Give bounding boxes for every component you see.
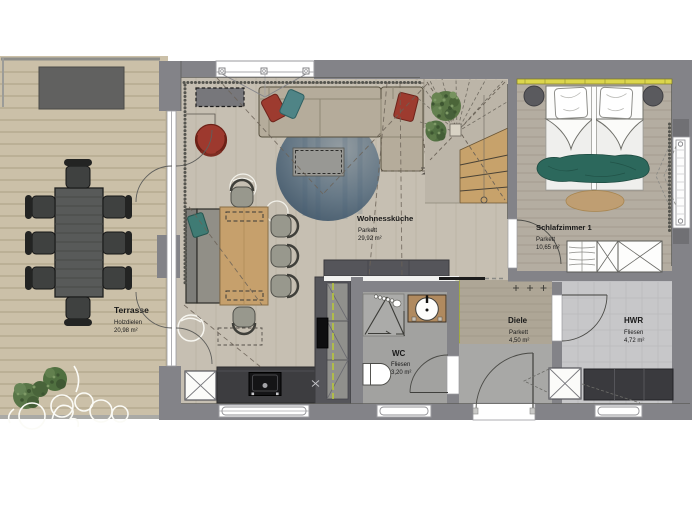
svg-text:Terrasse: Terrasse [114,305,149,315]
svg-text:Fliesen: Fliesen [624,330,643,336]
svg-text:29,92 m²: 29,92 m² [358,236,382,242]
svg-text:3,20 m²: 3,20 m² [391,370,411,376]
svg-text:HWR: HWR [624,316,643,325]
svg-text:20,98 m²: 20,98 m² [114,328,138,334]
svg-text:Diele: Diele [508,316,528,325]
svg-text:Parkett: Parkett [536,237,555,243]
svg-text:10,65 m²: 10,65 m² [536,245,560,251]
svg-text:4,50 m²: 4,50 m² [509,338,529,344]
svg-text:Parkett: Parkett [509,330,528,336]
svg-text:Holzdielen: Holzdielen [114,320,142,326]
svg-text:Fliesen: Fliesen [391,362,410,368]
svg-text:Wohnessküche: Wohnessküche [357,214,414,223]
svg-text:4,72 m²: 4,72 m² [624,338,644,344]
svg-text:WC: WC [392,349,406,358]
svg-text:Schlafzimmer 1: Schlafzimmer 1 [536,223,592,232]
svg-text:Parkett: Parkett [358,228,377,234]
